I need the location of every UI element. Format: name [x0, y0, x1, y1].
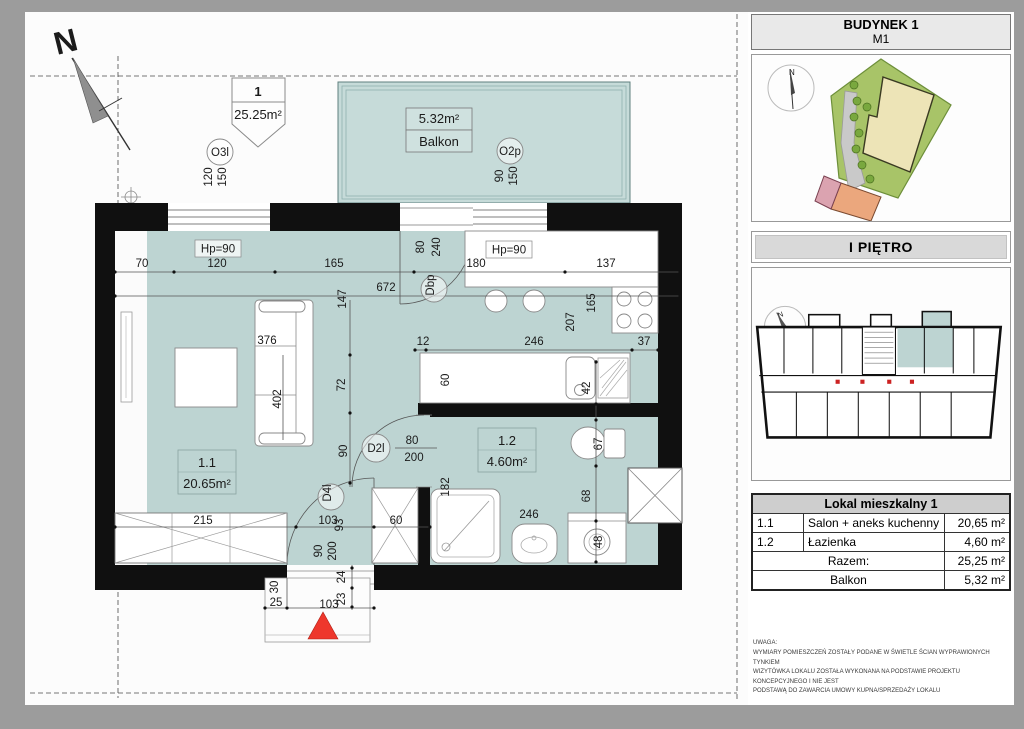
door-tag: D2l	[367, 443, 384, 455]
window-o3l	[168, 203, 270, 231]
dim: 120	[207, 258, 226, 270]
dim: 12	[417, 336, 430, 348]
room-id: 1.2	[498, 433, 516, 448]
floor-bar-box: I PIĘTRO	[751, 231, 1011, 263]
dim: 137	[596, 258, 615, 270]
dim: 165	[586, 293, 598, 312]
dim: 200	[327, 541, 339, 560]
room-area: 20.65m²	[183, 476, 231, 491]
dim: 37	[638, 336, 651, 348]
dim: 120	[203, 167, 215, 186]
dim: 215	[193, 515, 212, 527]
dim: 207	[565, 312, 577, 331]
kitchen-counter	[465, 231, 658, 287]
room-name: Łazienka	[804, 533, 945, 552]
floor-overview-drawing: N	[752, 268, 1010, 480]
room-area: 20,65 m²	[945, 514, 1011, 533]
stairs	[862, 327, 895, 374]
dim: 80	[406, 435, 419, 447]
balcony: 5.32m² Balkon	[338, 82, 630, 203]
drawing-sheet: N 1 25.25m² 5.32m² Balkon	[0, 0, 1024, 724]
dim: 90	[313, 545, 325, 558]
dim: 672	[376, 282, 395, 294]
unit-name: M1	[752, 32, 1010, 46]
dim: 48	[593, 536, 605, 549]
note-line: WYMIARY POMIESZCZEŃ ZOSTAŁY PODANE W ŚWI…	[753, 649, 1009, 668]
site-compass-icon: N	[768, 65, 814, 111]
dim: 93	[334, 519, 346, 532]
door-tag: Dbp	[425, 274, 437, 295]
floor-footprint	[757, 312, 1001, 438]
dim: 80	[415, 241, 427, 254]
dim: 182	[440, 477, 452, 496]
note-line: PODSTAWĄ DO ZAWARCIA UMOWY KUPNA/SPRZEDA…	[753, 687, 1009, 697]
unit-number: 1	[254, 84, 261, 99]
room-area: 4.60m²	[487, 454, 528, 469]
dim: 24	[336, 570, 348, 583]
dim: 200	[404, 452, 423, 464]
dim: 402	[272, 389, 284, 408]
note-line: WIZYTÓWKA LOKALU ZOSTAŁA WYKONANA NA POD…	[753, 668, 1009, 687]
dim: 103	[319, 599, 338, 611]
dim: 246	[524, 336, 543, 348]
dim: 60	[440, 374, 452, 387]
balcony-area: 5.32m²	[419, 111, 460, 126]
dim: 147	[337, 289, 349, 308]
window-o2p	[473, 203, 547, 231]
disclaimer-note: UWAGA: WYMIARY POMIESZCZEŃ ZOSTAŁY PODAN…	[751, 639, 1011, 703]
balcony-label: Balkon	[419, 134, 459, 149]
table-title: Lokal mieszkalny 1	[752, 494, 1010, 514]
dim: 70	[136, 258, 149, 270]
site-plan: N	[751, 54, 1011, 222]
dim: 150	[217, 167, 229, 186]
washbasin	[512, 524, 557, 563]
dim: 67	[593, 438, 605, 451]
stove	[612, 287, 658, 333]
room-name: Salon + aneks kuchenny	[804, 514, 945, 533]
table-row: 1.2 Łazienka 4,60 m²	[752, 533, 1010, 552]
room-area: 4,60 m²	[945, 533, 1011, 552]
room-id: 1.1	[198, 455, 216, 470]
dim: 60	[390, 515, 403, 527]
dim: 30	[269, 581, 281, 594]
info-panel: BUDYNEK 1 M1 N I PIĘTRO	[748, 12, 1014, 705]
table	[175, 348, 237, 407]
table-total-row: Razem: 25,25 m²	[752, 552, 1010, 571]
note-title: UWAGA:	[753, 639, 1009, 649]
dim: 246	[519, 509, 538, 521]
total-label: Razem:	[752, 552, 945, 571]
floor-title: I PIĘTRO	[755, 235, 1007, 259]
dim: 240	[431, 237, 443, 256]
unit-area: 25.25m²	[234, 107, 282, 122]
building-header: BUDYNEK 1 M1	[751, 14, 1011, 50]
hp-label: Hp=90	[201, 244, 235, 256]
radiator	[121, 312, 132, 402]
window-tag: O3l	[211, 147, 229, 159]
dim: 150	[508, 166, 520, 185]
table-balcony-row: Balkon 5,32 m²	[752, 571, 1010, 591]
dim: 72	[336, 379, 348, 392]
vent-shaft	[628, 468, 682, 523]
dim: 25	[270, 597, 283, 609]
floor-overview: N	[751, 267, 1011, 481]
balcony-label: Balkon	[752, 571, 945, 591]
dim: 90	[338, 445, 350, 458]
dim: 68	[581, 490, 593, 503]
dim: 90	[494, 170, 506, 183]
unit-table: Lokal mieszkalny 1 1.1 Salon + aneks kuc…	[751, 493, 1011, 591]
dim: 42	[581, 382, 593, 395]
table-row: 1.1 Salon + aneks kuchenny 20,65 m²	[752, 514, 1010, 533]
total-area: 25,25 m²	[945, 552, 1011, 571]
door-tag: D4l	[322, 484, 334, 501]
dim: 180	[466, 258, 485, 270]
highlight-balcony	[922, 312, 951, 329]
table-header-row: Lokal mieszkalny 1	[752, 494, 1010, 514]
sofa	[255, 300, 313, 446]
highlight-unit	[898, 328, 954, 367]
room-no: 1.2	[752, 533, 804, 552]
room-no: 1.1	[752, 514, 804, 533]
stool	[485, 290, 507, 312]
hp-label: Hp=90	[492, 245, 526, 257]
window-tag: O2p	[499, 146, 521, 158]
balcony-area: 5,32 m²	[945, 571, 1011, 591]
dim: 376	[257, 335, 276, 347]
shower	[431, 489, 500, 563]
dim: 165	[324, 258, 343, 270]
stool	[523, 290, 545, 312]
building-name: BUDYNEK 1	[752, 17, 1010, 32]
site-plan-drawing: N	[752, 55, 1010, 221]
